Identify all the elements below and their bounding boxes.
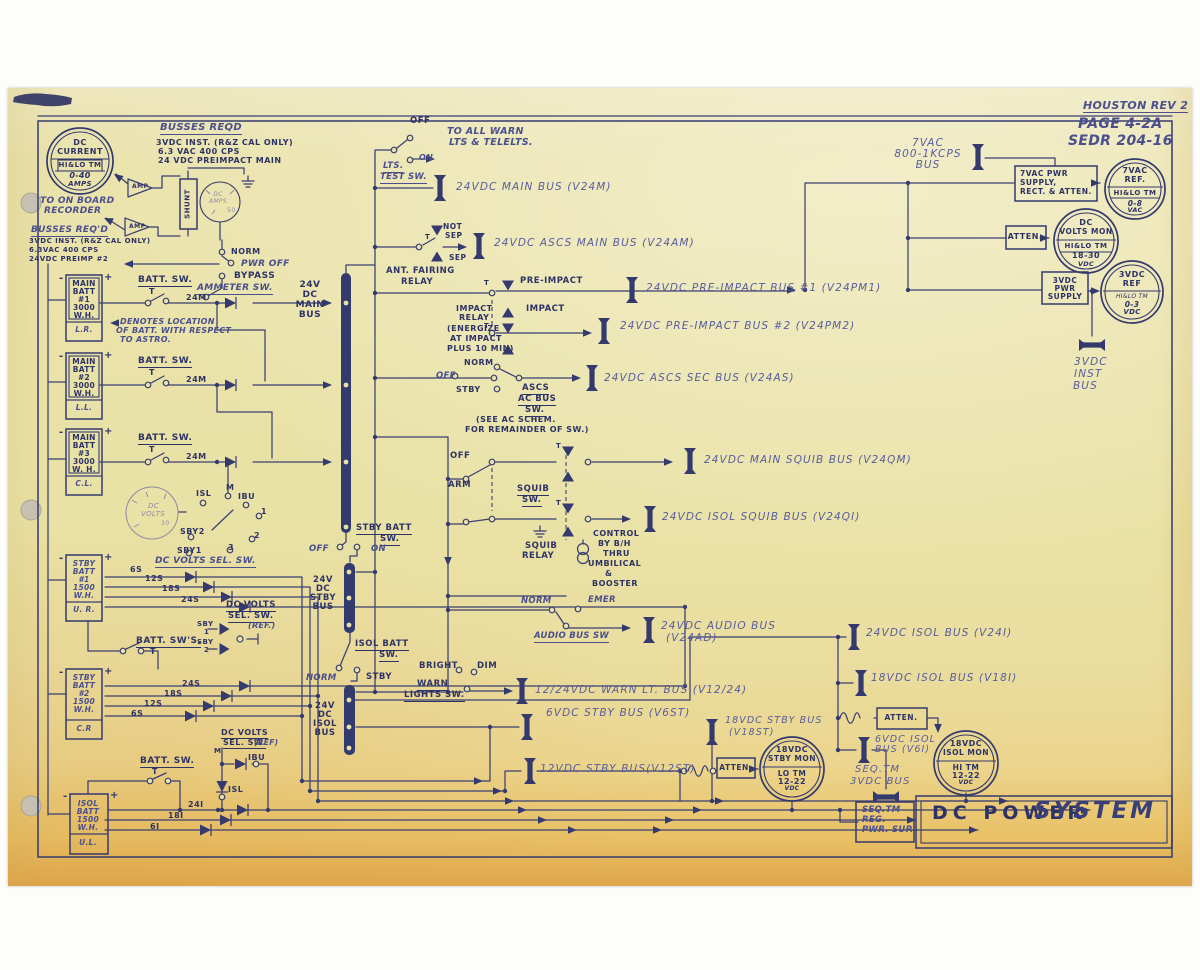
text-label: W.H.: [74, 390, 95, 398]
text-label: (V24AD): [666, 633, 718, 644]
text-label: ANT. FAIRING: [386, 267, 455, 276]
text-label: T: [152, 768, 158, 776]
text-label: BYPASS: [234, 272, 275, 281]
text-label: DIM: [477, 662, 497, 671]
text-label: U. R.: [73, 606, 95, 614]
text-label: STBY: [456, 386, 481, 394]
text-label: SEP: [445, 232, 463, 240]
meter-dc-volts: DC: [148, 503, 159, 510]
text-label: PRE-IMPACT: [520, 277, 583, 286]
text-label: BRIGHT: [419, 662, 458, 671]
text-label: 24M: [186, 453, 207, 461]
bus-v24as: 24VDC ASCS SEC BUS (V24AS): [604, 373, 795, 384]
text-label: NORM: [231, 248, 261, 256]
text-label: VDC: [959, 780, 974, 786]
text-label: -: [59, 554, 64, 564]
text-label: 24I: [188, 801, 204, 809]
text-label: AUDIO BUS SW: [534, 632, 609, 643]
text-label: AMP: [132, 184, 149, 190]
text-label: OF BATT. WITH RESPECT: [116, 327, 231, 335]
text-label: CONTROL: [593, 530, 639, 538]
text-label: -: [59, 274, 64, 284]
text-label: IMPACT: [456, 305, 493, 313]
text-label: 24 VDC PREIMPACT MAIN: [158, 157, 282, 165]
bus-v24qm: 24VDC MAIN SQUIB BUS (V24QM): [704, 455, 912, 466]
text-label: 6S: [131, 710, 143, 718]
text-label: VOLTS MON: [1059, 228, 1112, 236]
text-label: BUSSES REQ'D: [31, 226, 108, 237]
text-label: OFF: [436, 372, 456, 381]
text-label: LTS & TELELTS.: [449, 138, 533, 148]
text-label: AMPS: [209, 199, 227, 205]
text-label: 3VDC INST. (R&Z CAL ONLY): [29, 238, 151, 245]
meter-18vdc-stby-mon: 18VDC: [776, 746, 808, 754]
bus-7vac: 7VAC: [912, 138, 944, 149]
text-label: BUS: [1073, 381, 1098, 392]
text-label: NORM: [306, 674, 337, 683]
shunt-label: SHUNT: [185, 189, 192, 219]
text-label: T: [149, 288, 155, 296]
text-label: VDC: [1078, 261, 1094, 268]
text-label: U.L.: [79, 839, 97, 847]
text-label: DENOTES LOCATION: [120, 318, 215, 326]
text-label: AT IMPACT: [450, 335, 502, 343]
text-label: IMPACT: [526, 305, 565, 314]
text-label: (SEE AC SCHEM.: [476, 416, 556, 424]
text-label: STBY: [366, 673, 392, 682]
ink-scribble: [13, 93, 72, 106]
text-label: 3VDC BUS: [850, 777, 910, 787]
text-label: FOR REMAINDER OF SW.): [465, 426, 589, 434]
text-label: AMPS: [68, 181, 92, 188]
text-label: 6I: [150, 823, 160, 831]
text-label: STBY BATT: [356, 524, 412, 535]
sedr-number: SEDR 204-16: [1068, 134, 1173, 148]
text-label: 24M: [186, 294, 207, 302]
text-label: +: [104, 427, 113, 437]
text-label: DC VOLTS SEL. SW.: [155, 557, 256, 568]
bus-v24am: 24VDC ASCS MAIN BUS (V24AM): [494, 238, 695, 249]
bus-v24i: 24VDC ISOL BUS (V24I): [866, 628, 1012, 639]
text-label: W.H.: [78, 824, 99, 832]
text-label: +: [104, 351, 113, 361]
text-label: BUS: [916, 160, 941, 171]
text-label: BOOSTER: [592, 580, 638, 588]
text-label: 3VDC INST. (R&Z CAL ONLY): [156, 139, 293, 147]
text-label: M: [214, 748, 221, 755]
text-label: 2: [254, 532, 260, 540]
text-label: VDC: [1123, 309, 1140, 316]
text-label: TO ON BOARD: [40, 197, 114, 206]
text-label: T: [149, 446, 155, 454]
text-label: REF: [1123, 280, 1142, 288]
bus-v24pm1: 24VDC PRE-IMPACT BUS #1 (V24PM1): [646, 283, 881, 294]
meter-3vdc-ref: 3VDC: [1119, 271, 1145, 279]
text-label: SQUIB: [517, 485, 549, 496]
text-label: +: [104, 667, 113, 677]
text-label: W.H.: [74, 312, 95, 320]
stamp-houston: HOUSTON REV 2: [1083, 100, 1188, 113]
bus-v24m: 24VDC MAIN BUS (V24M): [456, 182, 612, 193]
text-label: ISL: [196, 490, 211, 498]
text-label: VAC: [1127, 207, 1142, 214]
text-label: BATT. SW.: [140, 757, 194, 768]
meter-18vdc-isol-mon: 18VDC: [950, 740, 982, 748]
text-label: 24S: [181, 596, 199, 604]
text-label: 6.3VAC 400 CPS: [29, 247, 99, 254]
text-label: SBY1: [177, 547, 202, 555]
text-label: EMER: [588, 596, 616, 605]
text-label: NORM: [464, 359, 494, 367]
page-number: PAGE 4-2A: [1078, 117, 1163, 131]
text-label: 18S: [162, 585, 180, 593]
text-label: BUS: [299, 311, 321, 320]
text-label: ARM: [448, 481, 471, 490]
text-label: T: [425, 234, 430, 241]
text-label: BUSSES REQD: [160, 123, 242, 135]
text-label: -: [59, 352, 64, 362]
text-label: M: [226, 484, 234, 492]
text-label: 0-40: [69, 172, 90, 180]
text-label: 6S: [130, 566, 142, 574]
text-label: CURRENT: [57, 148, 103, 156]
text-label: HI&LO TM: [59, 162, 102, 169]
text-label: 2: [204, 647, 209, 654]
text-label: PWR OFF: [241, 260, 290, 269]
text-label: -: [63, 792, 68, 802]
text-label: SW.: [522, 496, 542, 507]
drawing-title-script: SYSTEM: [1034, 800, 1156, 823]
text-label: RELAY: [522, 552, 554, 561]
bus-v18i: 18VDC ISOL BUS (V18I): [871, 673, 1017, 684]
text-label: +: [104, 273, 113, 283]
text-label: T: [150, 648, 156, 656]
text-label: AMP: [129, 224, 146, 230]
text-label: PWR. SUP.: [862, 826, 914, 835]
text-label: REG.: [862, 816, 886, 825]
text-label: 1: [204, 629, 209, 636]
text-label: ON: [419, 154, 433, 162]
text-label: SW.: [379, 651, 399, 662]
text-label: DC: [302, 291, 317, 300]
text-label: 800-1KCPS: [894, 149, 961, 160]
text-label: W. H.: [72, 466, 96, 474]
text-label: WARN: [417, 680, 448, 691]
text-label: BATT. SW.: [138, 357, 192, 368]
text-label: PLUS 10 MIN): [447, 345, 514, 353]
text-label: ON: [371, 545, 386, 554]
text-label: 50: [227, 208, 236, 214]
text-label: 24M: [186, 376, 207, 384]
text-label: BATT. SW.: [138, 276, 192, 287]
text-label: &: [605, 570, 612, 578]
text-label: SBY: [197, 621, 214, 628]
text-label: VDC: [785, 786, 800, 792]
text-label: ISL: [228, 786, 243, 794]
meter-7vac-ref: 7VAC: [1122, 167, 1147, 175]
box-seqtm: SEQ.TM: [862, 806, 900, 815]
text-label: 24S: [182, 680, 200, 688]
text-label: T: [556, 500, 561, 507]
text-label: SQUIB: [525, 542, 557, 551]
text-label: ISOL BATT: [355, 640, 409, 651]
text-label: W.H.: [74, 592, 95, 600]
text-label: 12S: [144, 700, 162, 708]
text-label: LIGHTS SW.: [404, 691, 465, 702]
text-label: (ENERGIZE: [447, 325, 500, 333]
drawing-border: [38, 116, 1172, 857]
text-label: 24VDC PREIMP #2: [29, 256, 108, 263]
text-label: IBU: [238, 493, 255, 501]
text-label: SEP: [449, 254, 467, 262]
text-label: -: [59, 668, 64, 678]
text-label: STBY MON: [768, 755, 816, 763]
text-label: -: [59, 428, 64, 438]
bus-bars: [341, 273, 355, 755]
meter-dc-volts-mon: DC: [1079, 219, 1093, 227]
text-label: ISOL MON: [943, 749, 989, 757]
text-label: 30: [161, 521, 170, 527]
text-label: 24V: [300, 281, 321, 290]
text-label: THRU: [603, 550, 630, 558]
text-label: AC BUS: [518, 395, 556, 406]
text-label: BUS: [312, 603, 333, 612]
text-label: INST: [1074, 369, 1102, 380]
text-label: 6.3 VAC 400 CPS: [158, 148, 240, 156]
text-label: OFF: [450, 452, 470, 461]
text-label: HI&LO TM: [1114, 190, 1157, 197]
text-label: ASCS: [522, 384, 549, 395]
text-label: 3: [228, 544, 234, 552]
bus-v24pm2: 24VDC PRE-IMPACT BUS #2 (V24PM2): [620, 321, 855, 332]
box-atten-top: ATTEN.: [1008, 233, 1043, 241]
text-label: TO ASTRO.: [120, 336, 171, 344]
text-label: W.H.: [74, 706, 95, 714]
text-label: T: [484, 280, 489, 287]
text-label: 18I: [168, 812, 184, 820]
box-atten-isol: ATTEN.: [885, 714, 918, 722]
text-label: 18-30: [1072, 252, 1100, 260]
box-7vac-supply: 7VAC PWR: [1020, 170, 1068, 178]
text-label: TEST SW.: [380, 173, 427, 184]
bus-v12st: 12VDC STBY BUS(V12ST): [540, 764, 696, 775]
text-label: DC VOLTS: [226, 601, 276, 612]
text-label: T: [149, 369, 155, 377]
text-label: MAIN: [296, 301, 325, 310]
text-label: UMBILICAL: [588, 560, 641, 568]
text-label: LTS.: [383, 162, 403, 173]
bus-v1224: 12/24VDC WARN LT. BUS (V12/24): [535, 685, 747, 696]
text-label: RECORDER: [44, 207, 101, 216]
text-label: BATT. SW.: [138, 434, 192, 445]
text-label: +: [104, 553, 113, 563]
text-label: +: [110, 791, 119, 801]
text-label: RECT. & ATTEN.: [1020, 188, 1092, 196]
text-label: (REF.): [248, 622, 275, 630]
text-label: SBY2: [180, 528, 205, 536]
text-label: C.R: [76, 725, 91, 733]
text-label: REF.: [1125, 176, 1146, 184]
text-label: NORM: [521, 597, 552, 606]
component-boxes: [180, 166, 1172, 848]
bus-3vdc-inst: 3VDC: [1074, 357, 1108, 368]
scanned-schematic-page: { "palette":{"ink":"#343a6e","ink_light"…: [0, 0, 1200, 970]
text-label: (REF): [254, 739, 278, 747]
text-label: RELAY: [459, 314, 489, 322]
text-label: BATT. SW'S.: [136, 637, 201, 648]
text-label: HI&LO TM: [1065, 243, 1108, 250]
text-label: BY B/H: [598, 540, 631, 548]
text-label: RELAY: [401, 278, 433, 287]
text-label: 1: [261, 508, 267, 516]
text-label: AMMETER SW.: [197, 284, 273, 295]
text-label: L.R.: [75, 326, 93, 334]
text-label: IBU: [248, 754, 265, 762]
text-label: 12S: [145, 575, 163, 583]
text-label: TO ALL WARN: [447, 127, 524, 137]
text-label: L.L.: [76, 404, 92, 412]
text-label: C.L.: [75, 480, 92, 488]
text-label: VOLTS: [141, 511, 165, 518]
text-label: BUS (V6I): [875, 745, 930, 755]
text-label: OFF: [309, 545, 329, 554]
bus-v6st: 6VDC STBY BUS (V6ST): [546, 708, 691, 719]
text-label: SUPPLY,: [1020, 179, 1057, 187]
box-atten-stby: ATTEN: [719, 764, 749, 772]
text-label: BUS: [314, 729, 335, 738]
bus-v18st: 18VDC STBY BUS: [725, 716, 822, 726]
text-label: SUPPLY: [1048, 293, 1083, 301]
text-label: (V18ST): [729, 728, 775, 738]
bus-v24ad: 24VDC AUDIO BUS: [661, 621, 776, 632]
bus-seqtm: SEQ.TM: [855, 765, 900, 775]
bus-v24qi: 24VDC ISOL SQUIB BUS (V24QI): [662, 512, 861, 523]
text-label: OFF: [410, 117, 430, 126]
text-label: NOT: [443, 223, 462, 231]
text-label: 18S: [164, 690, 182, 698]
meter-dc-current: DC: [73, 139, 87, 147]
text-label: T: [556, 443, 561, 450]
